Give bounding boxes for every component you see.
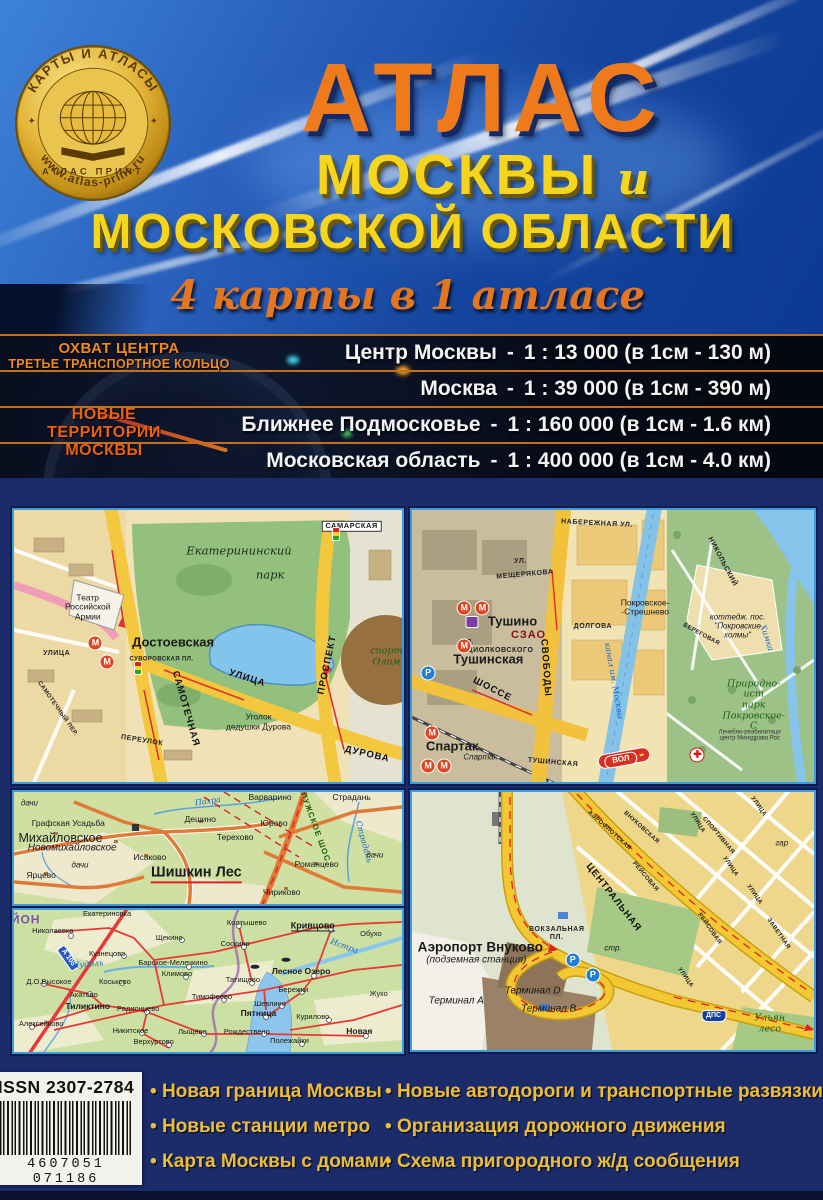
map-label: Екатериновка [83,910,131,918]
map-label: Ярцево [26,871,56,881]
map-label: Юрово [260,820,287,830]
train-icon [466,616,479,628]
feature-item: Новая граница Москвы [150,1074,391,1109]
map-preview-oblast: ЙОННиколаевкаЕкатериновкаЩекиноКолтышево… [12,908,404,1054]
map-labels: НАБЕРЕЖНАЯ УЛ.УЛ.МЕЩЕРЯКОВАНИКОЛЬСКИЙПок… [412,510,814,782]
map-label: СЗАО [511,629,546,641]
map-label: канал им. Москвы [602,642,624,720]
map-label: Терминал В [521,1003,576,1014]
map-label: Акатово [70,991,98,999]
map-label: Рождествено [224,1028,270,1036]
parking-icon: P [585,968,600,983]
feature-list-left: Новая граница Москвы Новые станции метро… [150,1074,391,1179]
map-label: ДУРОВА [344,744,391,765]
publisher-logo: КАРТЫ И АТЛАСЫ www.atlas-print.ru ✦ ✦ АТ… [14,44,172,202]
map-label: Кузнецово [89,950,125,958]
scale-map-name: Москва [420,377,497,400]
map-label: Пятница [241,1009,277,1019]
map-label: Природно-ист парк Покровское-С [722,679,785,732]
title-line2-word: МОСКВЫ [316,143,599,207]
map-label: ШОССЕ [471,675,513,704]
scale-row: Москва-1 : 39 000 (в 1см - 390 м) [0,372,823,408]
map-labels: САМАРСКАЯЕкатерининскийпаркТеатр Российс… [14,510,402,782]
map-label: УЛ. [463,640,474,647]
map-label: Спартак [426,739,478,754]
scale-dash: - [507,341,514,364]
map-label: СВОБОДЫ [537,638,552,697]
star-separator-icon: ✦ [28,116,36,127]
map-labels: ЙОННиколаевкаЕкатериновкаЩекиноКолтышево… [14,910,402,1052]
new-territories-label: НОВЫЕ ТЕРРИТОРИИ МОСКВЫ [24,406,184,460]
map-label: УЛИЦА [748,796,767,818]
scale-dash: - [491,449,498,472]
scale-value: 1 : 13 000 (в 1см - 130 м) [524,341,771,364]
footer: ISSN 2307-2784 4607051 071186 Новая гран… [0,1062,823,1200]
map-label: Уголок дедушки Дурова [226,713,291,732]
title-line3: МОСКОВСКОЙ ОБЛАСТИ [10,204,815,260]
parking-icon: P [421,666,436,681]
feature-item: Схема пригородного ж/д сообщения [385,1144,823,1179]
map-label: УЛИЦА [43,650,70,658]
map-label: УЛИЦА [227,668,266,690]
map-label: Обухо [360,930,382,938]
map-label: Графская Усадьба [32,820,105,830]
map-label: (подземная станция) [426,954,526,965]
map-label: ВНУКОВСКАЯ [622,810,660,845]
map-label: СПОРТИВНАЯ [700,816,735,856]
metro-icon: М [425,726,440,741]
barcode-digits: 4607051 071186 [0,1157,142,1187]
map-label: САМОТЕЧНЫЙ ПЕР. [35,680,78,737]
map-label: коттедж. пос. "Покровские холмы" [710,614,765,641]
map-label: Николаевка [32,927,73,935]
map-label: гар [775,839,788,848]
map-label: Исаково [133,853,166,863]
title-line2: МОСКВЫ и [150,142,815,208]
coverage-label-line1: ОХВАТ ЦЕНТРА [0,340,238,357]
redcross-icon: ✚ [690,747,705,762]
feature-item: Новые автодороги и транспортные развязки [385,1074,823,1109]
map-label: Тушинская [453,652,523,667]
issn-number: ISSN 2307-2784 [0,1077,142,1098]
map-label: Никитское [112,1026,148,1034]
metro-icon: М [457,639,472,654]
map-label: Екатерининский [186,544,291,557]
map-label: Климово [162,970,192,978]
map-label: Бережки [278,985,308,993]
map-label: Терминал D [505,985,561,996]
parking-icon: P [565,952,580,967]
map-label: Курилово [296,1012,329,1020]
map-preview-shishkin-les: дачиГрафская УсадьбаМихайловскоеНовомиха… [12,790,404,906]
map-label: НАБЕРЕЖНАЯ УЛ. [561,518,633,530]
globe-icon [60,91,125,144]
map-label: Аэропорт Внуково [418,939,543,954]
map-label: Истра [329,938,359,956]
map-label: дачи [71,861,88,870]
map-label: Дешино [184,815,215,825]
map-label: Терминал А [429,995,484,1006]
map-label: Соскино [221,940,250,948]
map-label: Достоевская [132,636,214,651]
map-label: Радионцево [117,1005,159,1013]
map-label: ПЕРЕУЛОК [120,734,163,748]
map-label: Нудоль [72,960,104,972]
metro-icon: М [457,600,472,615]
metro-icon: М [100,655,115,670]
traffic-icon [134,661,142,675]
map-label: ЗАВЕТНАЯ [765,917,791,951]
map-label: Ульян лесо [754,1014,785,1035]
map-label: Театр Российской Армии [65,594,111,623]
map-label: Шевлино [254,1000,286,1008]
map-preview-vnukovo: ЦЕНТРАЛЬНАЯАЭРОФЛОТСКАЯВНУКОВСКАЯРЕЙСОВА… [410,790,816,1052]
map-label: Лыщёво [178,1028,207,1036]
new-territories-line2: ТЕРРИТОРИИ [24,424,184,442]
feature-list-right: Новые автодороги и транспортные развязки… [385,1074,823,1179]
map-label: КАЛУЖСКОЕ ШОС. [293,790,332,867]
feature-item: Карта Москвы с домами [150,1144,391,1179]
map-label: Тимофеево [192,992,232,1000]
title-line1: АТЛАС [150,42,815,154]
scale-map-name: Ближнее Подмосковье [241,413,480,436]
map-label: Михайловское [19,831,103,845]
map-label: СУВОРОВСКАЯ ПЛ. [129,656,193,663]
feature-item: Организация дорожного движения [385,1109,823,1144]
map-label: Химка [757,624,774,652]
map-label: стр. [604,945,621,954]
map-label: А 108 [57,945,80,972]
map-label: САМОТЕЧНАЯ [169,670,201,748]
map-label: АЭРОФЛОТСКАЯ [586,809,632,851]
map-label: Новая [346,1027,372,1037]
scale-dash: - [491,413,498,436]
map-label: Алексейково [19,1019,64,1027]
map-label: дачи [366,851,383,860]
new-territories-line1: НОВЫЕ [24,406,184,424]
map-label: Кривцово [291,920,335,931]
map-label: Пахра [194,796,221,809]
map-label: спорт Олим [370,646,402,667]
map-label: Лечебно-реабилитаци центр Минздрава Рос [719,729,781,742]
map-label: УЛ. [514,558,527,566]
map-label: Лесное Озеро [272,968,331,978]
map-label: Колтышево [227,919,267,927]
map-label: Шишкин Лес [151,864,242,883]
metro-icon: М [88,636,103,651]
barcode-icon [0,1101,132,1155]
coverage-label-line2: ТРЕТЬЕ ТРАНСПОРТНОЕ КОЛЬЦО [0,357,238,371]
map-label: Жуко [370,990,388,998]
map-previews-area: САМАРСКАЯЕкатерининскийпаркТеатр Российс… [0,478,823,1062]
map-label: Терехово [217,833,254,843]
map-label: Татищево [226,975,260,983]
new-territories-line3: МОСКВЫ [24,442,184,460]
map-label: РЕЙСОВАЯ [631,861,660,894]
map-label: Варварино [248,793,291,803]
map-preview-dostoevskaya: САМАРСКАЯЕкатерининскийпаркТеатр Российс… [12,508,404,784]
map-label: НИКОЛЬСКИЙ [705,536,738,588]
map-label: Тушино [488,614,537,629]
logo-center-text: АТЛАС ПРИНТ [42,167,144,178]
map-label: САМАРСКАЯ [321,521,381,531]
atlas-cover: КАРТЫ И АТЛАСЫ www.atlas-print.ru ✦ ✦ АТ… [0,0,823,1200]
metro-icon: М [475,600,490,615]
scale-map-name: Московская область [266,449,480,472]
scale-dash: - [507,377,514,400]
traffic-icon [332,527,340,541]
map-labels: дачиГрафская УсадьбаМихайловскоеНовомиха… [14,792,402,904]
map-label: БЕРЕГОВАЯ [682,623,721,648]
feature-item: Новые станции метро [150,1109,391,1144]
map-label: дачи [21,800,38,809]
map-label: ПРОСПЕКТ [317,634,340,695]
map-label: Спартак [463,753,497,762]
map-label: ЙОН [12,913,40,926]
map-label: ТУШИНСКАЯ [527,757,578,769]
map-label: Полежайки [270,1036,309,1044]
dps-icon: ДПС [701,1011,726,1023]
scale-value: 1 : 160 000 (в 1см - 1.6 км) [508,413,771,436]
scale-value: 1 : 400 000 (в 1см - 4.0 км) [508,449,771,472]
map-label: парк [256,569,285,582]
scales-band: Центр Москвы-1 : 13 000 (в 1см - 130 м) … [0,334,823,478]
cover-bottom-edge [0,1191,823,1200]
map-preview-tushino: НАБЕРЕЖНАЯ УЛ.УЛ.МЕЩЕРЯКОВАНИКОЛЬСКИЙПок… [410,508,816,784]
title-subtitle: 4 карты в 1 атласе [0,272,815,319]
map-labels: ЦЕНТРАЛЬНАЯАЭРОФЛОТСКАЯВНУКОВСКАЯРЕЙСОВА… [412,792,814,1050]
fish-icon [250,965,259,970]
map-label: ЦИОЛКОВСКОГО [467,648,533,656]
map-label: УЛИЦА [676,967,695,989]
map-label: Новомихайловское [28,842,117,853]
map-label: УЛИЦА [720,856,739,878]
map-label: ВОКЗАЛЬНАЯ ПЛ. [529,926,584,942]
map-label: МЕЩЕРЯКОВА [496,569,554,582]
hero-header: КАРТЫ И АТЛАСЫ www.atlas-print.ru ✦ ✦ АТ… [0,0,823,337]
map-label: ЦЕНТРАЛЬНАЯ [583,862,643,934]
title-conjunction: и [617,154,649,205]
map-label: Страдань [332,793,370,803]
map-label: Д.О.Высокое [26,978,71,986]
map-label: Тиликтино [65,1002,110,1012]
map-label: УЛИЦА [689,812,707,835]
map-label: ВОЛ [604,751,639,770]
fish-icon [281,957,290,962]
map-label: Чириково [263,888,301,898]
map-label: Романцево [295,860,339,870]
scale-value: 1 : 39 000 (в 1см - 390 м) [524,377,771,400]
metro-icon: М [437,758,452,773]
barcode-block: ISSN 2307-2784 4607051 071186 [0,1072,142,1185]
metro-icon: М [421,758,436,773]
map-label: УЛИЦА [744,884,763,906]
map-label: ДОЛГОВА [574,623,612,631]
scale-map-name: Центр Москвы [345,341,497,364]
map-label: Коськово [99,978,131,986]
map-label: РЕЙСОВАЯ [696,912,723,946]
coverage-label: ОХВАТ ЦЕНТРА ТРЕТЬЕ ТРАНСПОРТНОЕ КОЛЬЦО [0,340,238,371]
map-label: Барское-Мелечкино [138,958,207,966]
map-label: Щекино [156,934,183,942]
map-label: Покровское- -Стрешнево [621,598,670,617]
map-label: Верхуртово [134,1038,174,1046]
map-label: Страдань [353,820,373,864]
